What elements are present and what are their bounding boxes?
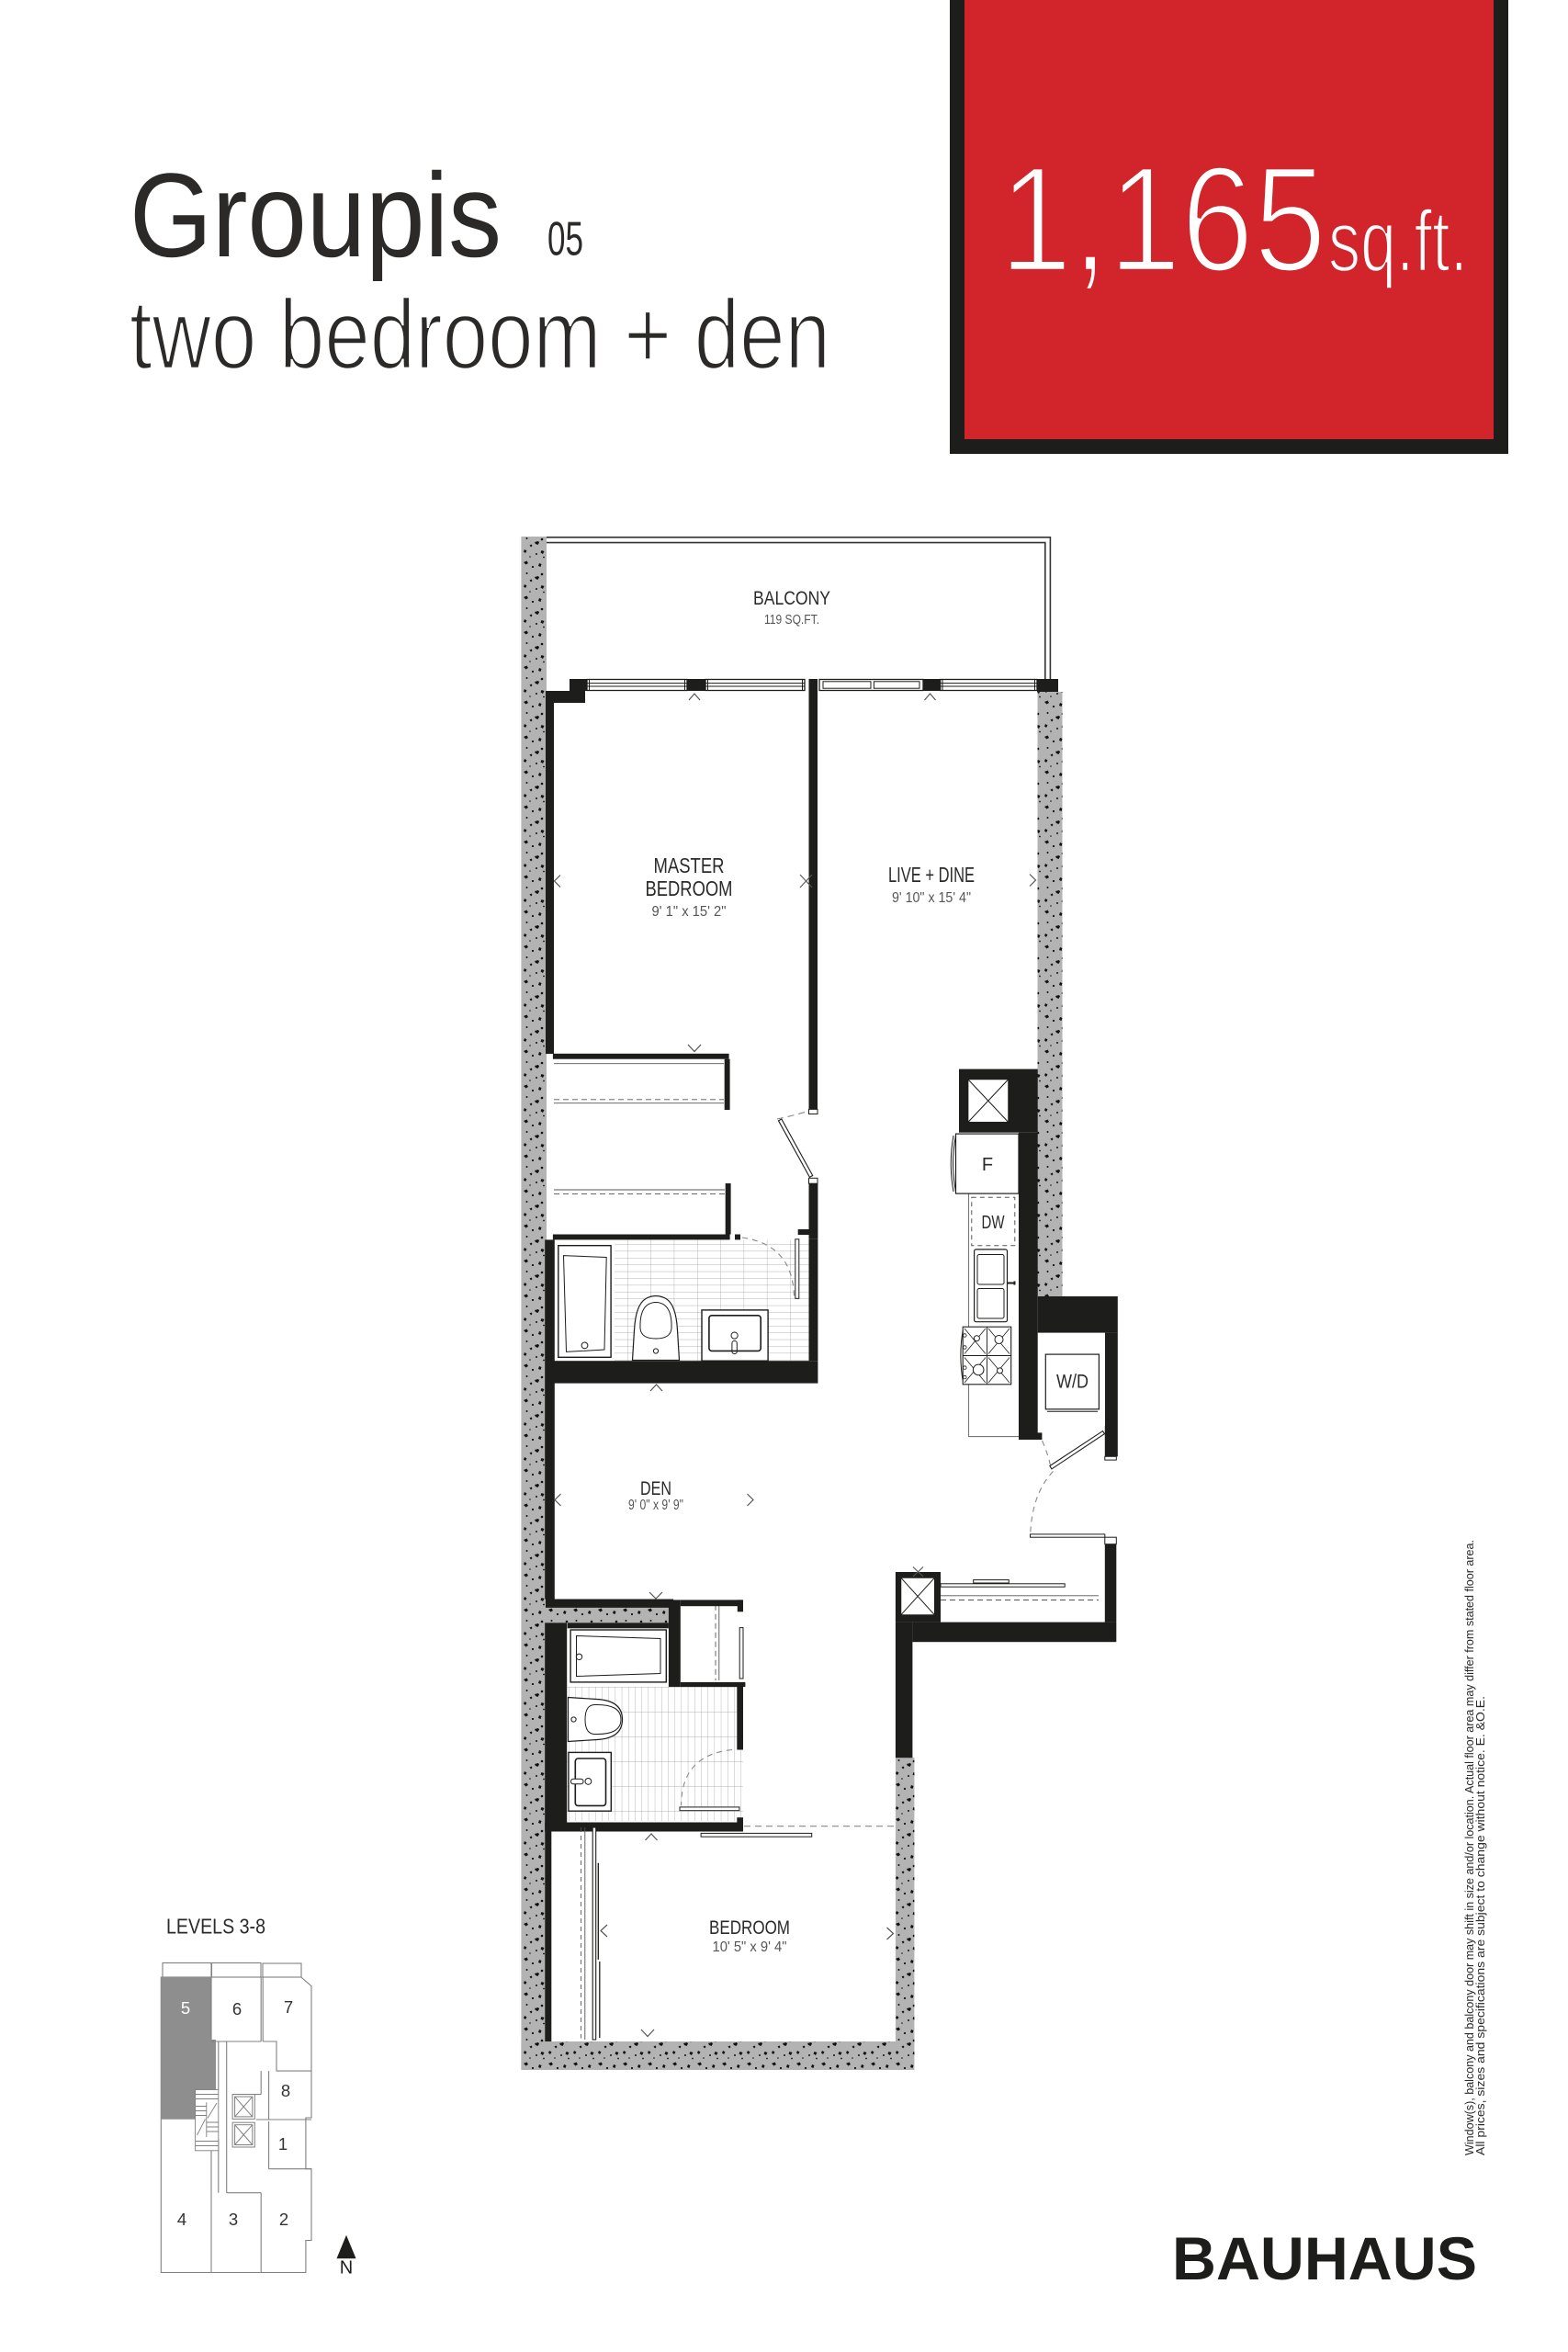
svg-text:N: N	[340, 2258, 353, 2278]
svg-text:2: 2	[279, 2210, 288, 2229]
svg-text:DW: DW	[982, 1213, 1005, 1233]
svg-text:4: 4	[177, 2210, 186, 2229]
svg-text:DEN: DEN	[640, 1478, 671, 1499]
svg-text:sq.ft.: sq.ft.	[1328, 193, 1468, 290]
svg-text:9' 0" x 9' 9": 9' 0" x 9' 9"	[628, 1498, 683, 1513]
svg-text:119 SQ.FT.: 119 SQ.FT.	[764, 612, 819, 628]
svg-text:9' 1" x 15' 2": 9' 1" x 15' 2"	[652, 904, 727, 920]
svg-text:9' 10" x 15' 4": 9' 10" x 15' 4"	[892, 890, 971, 906]
svg-text:LIVE + DINE: LIVE + DINE	[888, 863, 975, 887]
svg-text:10' 5" x 9' 4": 10' 5" x 9' 4"	[713, 1939, 787, 1955]
svg-text:1: 1	[278, 2134, 288, 2154]
svg-text:5: 5	[181, 1998, 190, 2018]
svg-text:BEDROOM: BEDROOM	[709, 1917, 790, 1939]
svg-text:BAUHAUS: BAUHAUS	[1172, 2224, 1477, 2292]
svg-text:6: 6	[232, 1999, 242, 2018]
svg-text:1,165: 1,165	[999, 135, 1326, 303]
svg-text:W/D: W/D	[1056, 1372, 1089, 1393]
svg-text:F: F	[982, 1155, 993, 1175]
svg-text:LEVELS 3-8: LEVELS 3-8	[166, 1915, 265, 1939]
svg-text:BALCONY: BALCONY	[753, 587, 830, 609]
svg-text:BEDROOM: BEDROOM	[646, 876, 733, 900]
svg-text:8: 8	[281, 2081, 290, 2100]
svg-text:two bedroom + den: two bedroom + den	[130, 278, 830, 390]
svg-text:Groupis: Groupis	[130, 148, 502, 282]
svg-text:3: 3	[229, 2210, 238, 2229]
svg-text:MASTER: MASTER	[654, 854, 725, 877]
svg-text:All prices, sizes and specific: All prices, sizes and specifications are…	[1474, 1696, 1487, 2155]
svg-text:7: 7	[284, 1997, 293, 2017]
svg-text:05: 05	[547, 213, 583, 266]
